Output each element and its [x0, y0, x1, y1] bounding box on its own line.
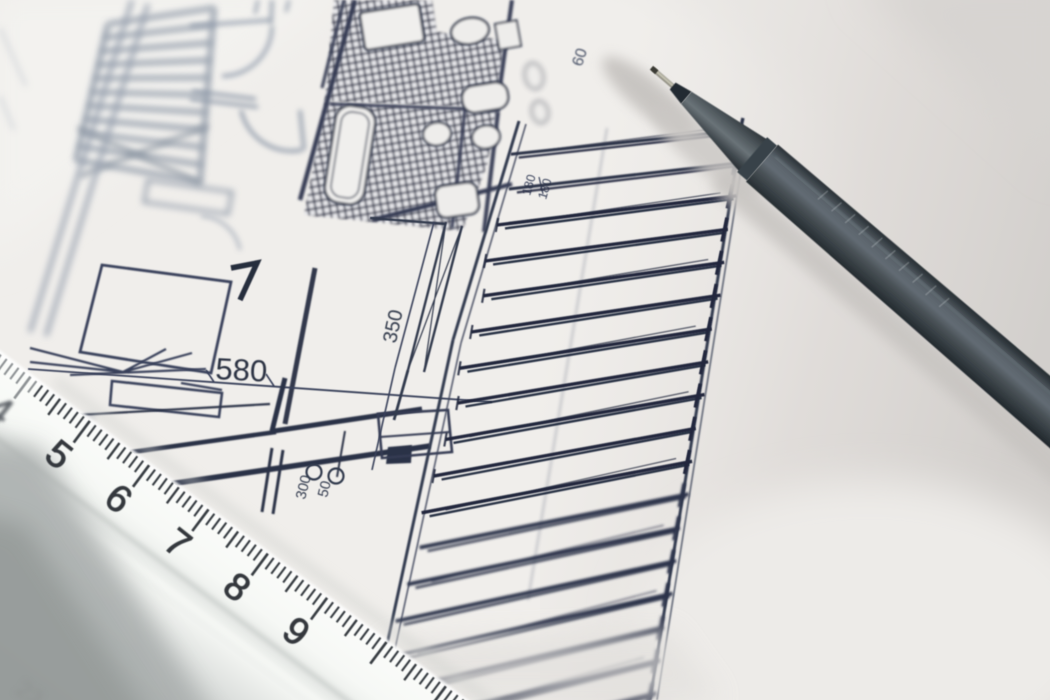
svg-text:580: 580 — [215, 351, 268, 389]
